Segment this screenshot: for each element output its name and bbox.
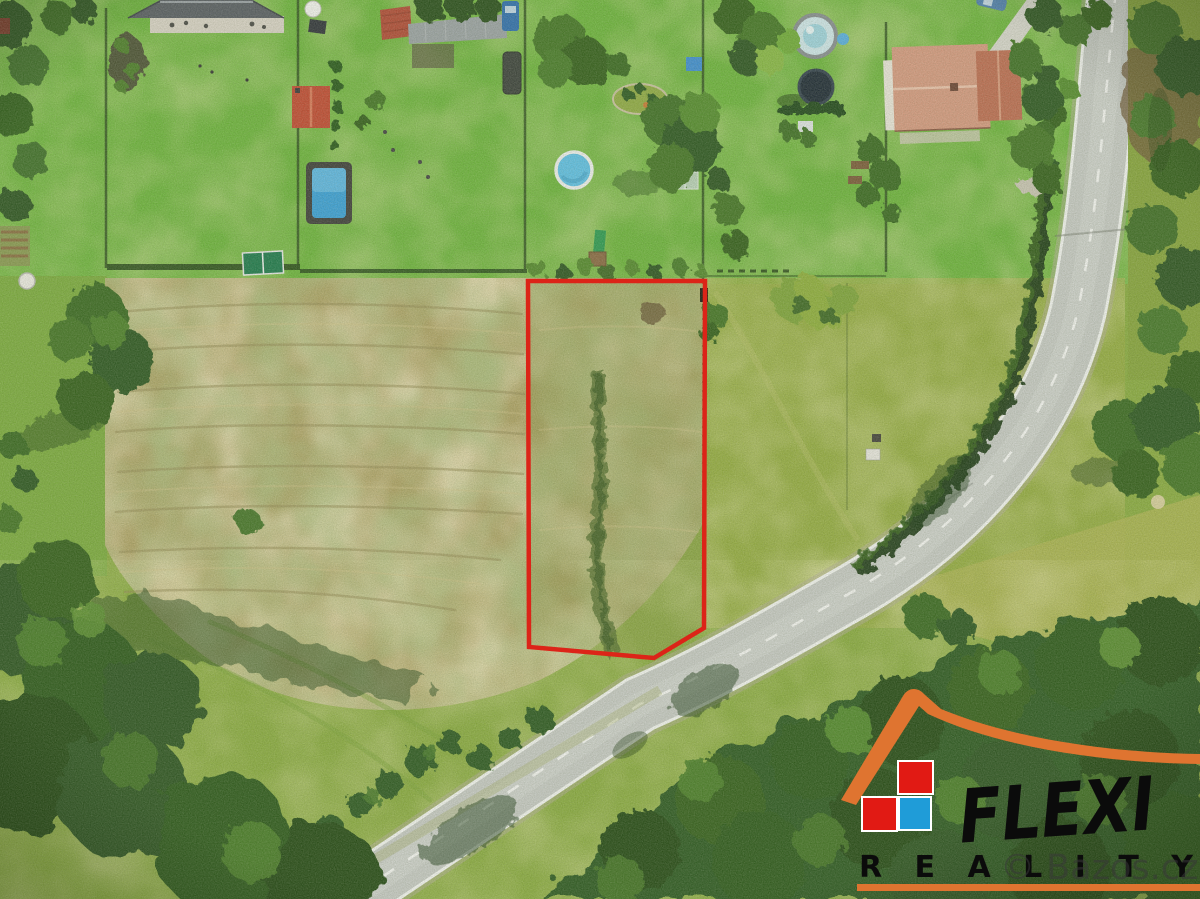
brand-text: FLEXI — [956, 761, 1158, 860]
watermark-text: © Bazos.cz — [1000, 848, 1198, 888]
aerial-photo-canvas: FLEXI REALITY © Bazos.cz — [0, 0, 1200, 899]
aerial-photo: FLEXI REALITY © Bazos.cz — [0, 0, 1200, 899]
vignette — [0, 0, 1200, 899]
